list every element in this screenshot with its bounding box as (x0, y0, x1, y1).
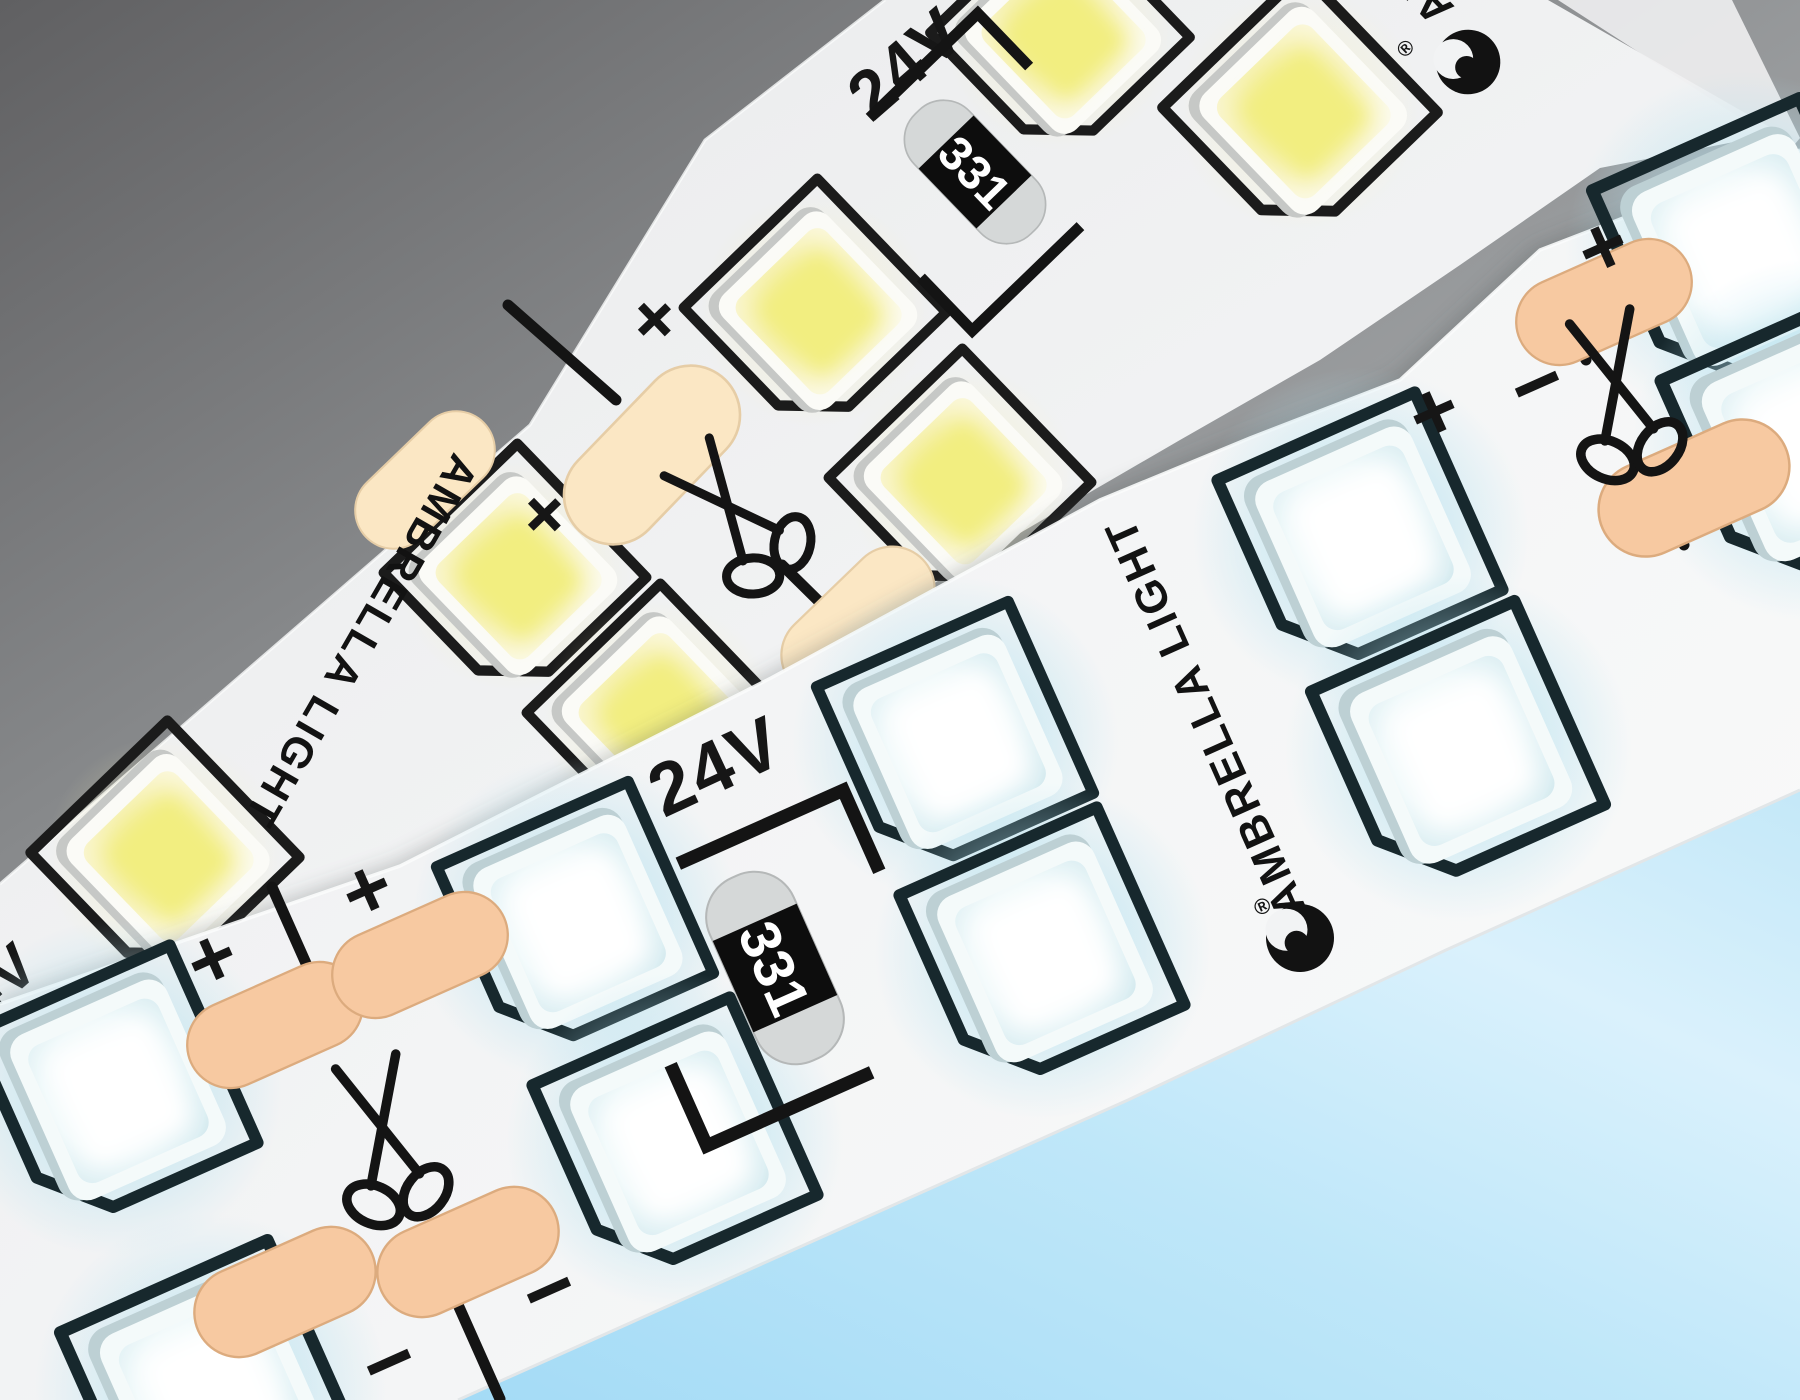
scene: + + 24V 24V 331 AMBRELLA LIGHT ® AMBRELL… (0, 0, 1800, 1400)
led-strip-product-photo: + + 24V 24V 331 AMBRELLA LIGHT ® AMBRELL… (0, 0, 1800, 1400)
